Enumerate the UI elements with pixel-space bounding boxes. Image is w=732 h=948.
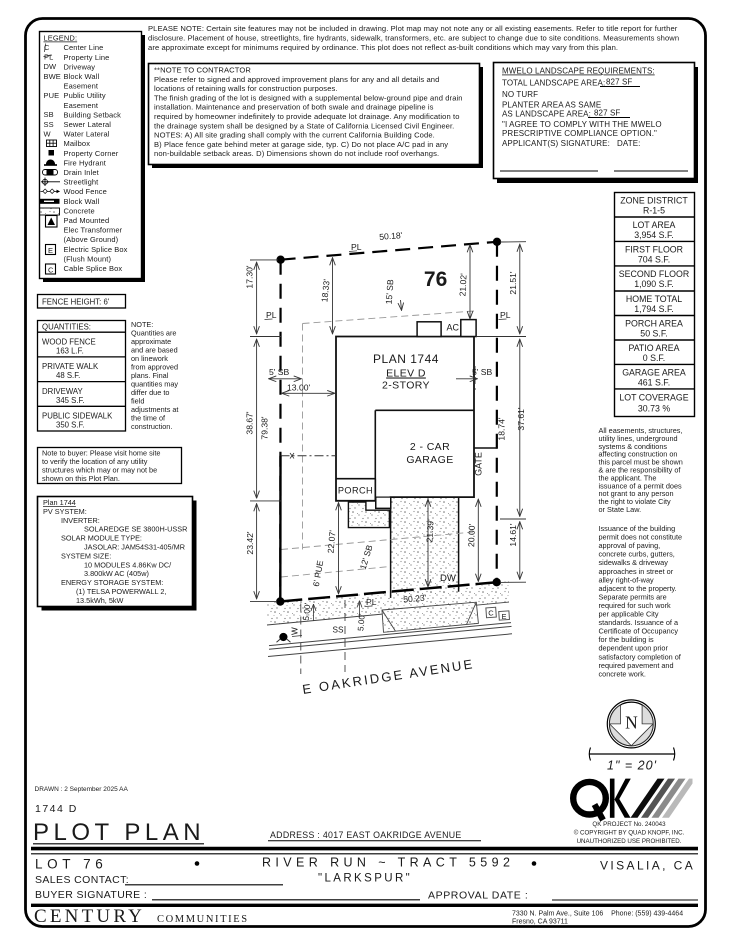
svg-text:SOLAR MODULE TYPE:: SOLAR MODULE TYPE: xyxy=(61,534,142,543)
svg-text:Please refer to signed and app: Please refer to signed and approved impr… xyxy=(154,75,439,84)
svg-text:Fresno, CA 93711: Fresno, CA 93711 xyxy=(512,918,568,925)
svg-text:Sewer Lateral: Sewer Lateral xyxy=(64,120,112,129)
svg-text:Property Corner: Property Corner xyxy=(64,149,119,158)
svg-text:E OAKRIDGE AVENUE: E OAKRIDGE AVENUE xyxy=(301,656,475,697)
svg-text:50 S.F.: 50 S.F. xyxy=(640,329,667,339)
svg-text:FIRST FLOOR: FIRST FLOOR xyxy=(625,244,683,254)
svg-text:Block Wall: Block Wall xyxy=(64,72,100,81)
svg-text:FENCE HEIGHT: 6': FENCE HEIGHT: 6' xyxy=(42,298,110,307)
svg-text:SS: SS xyxy=(44,120,54,129)
svg-text:5' SB: 5' SB xyxy=(472,367,493,377)
svg-text:PV SYSTEM:: PV SYSTEM: xyxy=(43,507,87,516)
svg-text:30.73 %: 30.73 % xyxy=(638,404,670,414)
svg-text:C: C xyxy=(488,609,494,618)
svg-text:2 - CAR: 2 - CAR xyxy=(410,441,450,453)
svg-text:76: 76 xyxy=(424,268,447,291)
svg-text:1" = 20': 1" = 20' xyxy=(607,759,657,773)
svg-text:construction.: construction. xyxy=(131,422,172,431)
svg-text:Concrete: Concrete xyxy=(64,206,95,215)
svg-text:QUANTITIES:: QUANTITIES: xyxy=(42,323,91,332)
svg-text:PLANTER AREA AS SAME: PLANTER AREA AS SAME xyxy=(502,101,601,110)
svg-text:DRIVEWAY: DRIVEWAY xyxy=(42,387,84,396)
svg-text:CENTURY: CENTURY xyxy=(34,906,145,927)
svg-text:R-1-5: R-1-5 xyxy=(643,206,665,216)
svg-text:non-buildable setback areas.: non-buildable setback areas. D) Dimensio… xyxy=(154,149,439,158)
svg-text:UNAUTHORIZED USE PROHIBITED.: UNAUTHORIZED USE PROHIBITED. xyxy=(577,838,682,845)
svg-text:MWELO LANDSCAPE REQUIREMENTS:: MWELO LANDSCAPE REQUIREMENTS: xyxy=(502,67,655,76)
svg-text:APPROVAL DATE :: APPROVAL DATE : xyxy=(428,890,528,902)
svg-text:13.00': 13.00' xyxy=(287,383,311,393)
svg-text:AC: AC xyxy=(446,323,459,333)
svg-text:3,954 S.F.: 3,954 S.F. xyxy=(634,230,674,240)
svg-text:23.42': 23.42' xyxy=(245,531,255,555)
svg-text:PLEASE NOTE: Certain site fea: PLEASE NOTE: Certain site features may n… xyxy=(148,24,678,33)
svg-text:0 S.F.: 0 S.F. xyxy=(643,353,666,363)
svg-text:Driveway: Driveway xyxy=(64,62,96,71)
svg-text:LOT COVERAGE: LOT COVERAGE xyxy=(619,393,688,403)
svg-text:PRESCRIPTIVE COMPLIANCE OPTION: PRESCRIPTIVE COMPLIANCE OPTION." xyxy=(502,129,657,138)
svg-text:disclosure. Placement of hous: disclosure. Placement of house, streetli… xyxy=(148,34,679,43)
svg-text:1,794 S.F.: 1,794 S.F. xyxy=(634,304,674,314)
svg-text:163 L.F.: 163 L.F. xyxy=(56,347,84,356)
svg-text:Plan 1744: Plan 1744 xyxy=(43,498,76,507)
svg-text:50.18': 50.18' xyxy=(379,230,403,242)
svg-text:shown on this Plot Plan.: shown on this Plot Plan. xyxy=(42,474,120,483)
svg-text:PUBLIC SIDEWALK: PUBLIC SIDEWALK xyxy=(42,412,113,421)
svg-text:SB: SB xyxy=(44,110,54,119)
svg-text:1744 D: 1744 D xyxy=(35,803,78,815)
svg-text:COMMUNITIES: COMMUNITIES xyxy=(157,914,249,925)
svg-text:Elec Transformer: Elec Transformer xyxy=(64,226,123,235)
svg-text:345 S.F.: 345 S.F. xyxy=(56,396,85,405)
svg-text:PLOT PLAN: PLOT PLAN xyxy=(33,819,205,846)
svg-text:48 S.F.: 48 S.F. xyxy=(56,371,80,380)
svg-text:concrete work.: concrete work. xyxy=(599,669,646,678)
svg-text:1,090 S.F.: 1,090 S.F. xyxy=(634,279,674,289)
svg-text:PL: PL xyxy=(500,310,511,320)
svg-text:W: W xyxy=(44,129,52,138)
svg-text:DATE:: DATE: xyxy=(617,139,640,148)
svg-text:Water Lateral: Water Lateral xyxy=(64,130,110,139)
svg-text:SYSTEM SIZE:: SYSTEM SIZE: xyxy=(61,551,111,560)
svg-text:PORCH: PORCH xyxy=(338,486,373,496)
svg-text:Cable Splice Box: Cable Splice Box xyxy=(64,264,123,273)
svg-text:50.23': 50.23' xyxy=(403,592,427,604)
svg-text:© COPYRIGHT BY QUAD KNOPF, I: © COPYRIGHT BY QUAD KNOPF, INC. xyxy=(574,830,685,837)
svg-text:SS: SS xyxy=(333,626,344,635)
svg-text:5' SB: 5' SB xyxy=(269,367,290,377)
svg-text:JASOLAR: JAM54S31-405/MR: JASOLAR: JAM54S31-405/MR xyxy=(84,543,185,552)
svg-text:B) Place fence gate behind met: B) Place fence gate behind meter at gara… xyxy=(154,140,448,149)
svg-text:22.07': 22.07' xyxy=(326,529,338,553)
svg-text:5.00': 5.00' xyxy=(302,602,313,621)
svg-text:PL: PL xyxy=(366,597,377,607)
svg-text:TOTAL LANDSCAPE AREA:: TOTAL LANDSCAPE AREA: xyxy=(502,79,605,88)
svg-text:DRAWN : 2 September 2025 A: DRAWN : 2 September 2025 AA xyxy=(35,786,129,793)
svg-text:Electric Splice Box: Electric Splice Box xyxy=(64,245,128,254)
svg-text:the drainage system shall be d: the drainage system shall be designed by… xyxy=(154,121,454,130)
svg-text:DW: DW xyxy=(440,573,456,584)
svg-text:N: N xyxy=(625,712,638,732)
svg-text:Pad Mounted: Pad Mounted xyxy=(64,216,110,225)
svg-text:704 S.F.: 704 S.F. xyxy=(638,254,670,264)
svg-text:7330 N. Palm Ave., Suite 106: 7330 N. Palm Ave., Suite 106 Phone: (559… xyxy=(512,911,683,918)
svg-text:2-STORY: 2-STORY xyxy=(382,380,430,392)
svg-text:ADDRESS : 4017 EAST OAKRIDGE: ADDRESS : 4017 EAST OAKRIDGE AVENUE xyxy=(270,830,462,840)
svg-text:WOOD FENCE: WOOD FENCE xyxy=(42,338,96,347)
svg-text:3.800kW AC (405w): 3.800kW AC (405w) xyxy=(84,569,149,578)
svg-text:GARAGE AREA: GARAGE AREA xyxy=(622,368,686,378)
svg-text:DW: DW xyxy=(44,62,58,71)
svg-text:SECOND FLOOR: SECOND FLOOR xyxy=(619,269,689,279)
svg-text:BUYER SIGNATURE :: BUYER SIGNATURE : xyxy=(35,889,147,901)
svg-text:SOLAREDGE SE 3800H-USSR: SOLAREDGE SE 3800H-USSR xyxy=(84,525,187,534)
svg-text:W: W xyxy=(291,627,300,635)
svg-text:Drain Inlet: Drain Inlet xyxy=(64,168,100,177)
svg-text:GATE: GATE xyxy=(474,452,484,476)
svg-text:Fire Hydrant: Fire Hydrant xyxy=(64,158,107,167)
svg-text:or State Law.: or State Law. xyxy=(599,505,642,514)
svg-text:ZONE DISTRICT: ZONE DISTRICT xyxy=(620,196,688,206)
svg-text:Public Utility: Public Utility xyxy=(64,91,106,100)
svg-text:(1) TELSA POWERWALL 2,: (1) TELSA POWERWALL 2, xyxy=(76,587,166,596)
svg-text:Easement: Easement xyxy=(64,82,99,91)
svg-text:10 MODULES 4.86Kw DC/: 10 MODULES 4.86Kw DC/ xyxy=(84,560,172,569)
svg-text:Easement: Easement xyxy=(64,101,99,110)
svg-text:12' SB: 12' SB xyxy=(358,543,375,570)
svg-text:LOT AREA: LOT AREA xyxy=(633,220,676,230)
svg-text:37.61': 37.61' xyxy=(516,407,526,431)
svg-text:QK PROJECT No. 240043: QK PROJECT No. 240043 xyxy=(592,821,666,828)
svg-text:13.5kWh, 5kW: 13.5kWh, 5kW xyxy=(76,596,124,605)
svg-text:PUE: PUE xyxy=(44,91,60,100)
svg-text:"I AGREE TO COMPLY WITH THE MW: "I AGREE TO COMPLY WITH THE MWELO xyxy=(502,120,662,129)
svg-text:E: E xyxy=(502,612,507,621)
svg-text:are approximate except for min: are approximate except for minimums requ… xyxy=(148,43,618,52)
svg-text:18.74': 18.74' xyxy=(497,417,507,441)
svg-text:ENERGY STORAGE SYSTEM:: ENERGY STORAGE SYSTEM: xyxy=(61,578,163,587)
svg-text:461 S.F.: 461 S.F. xyxy=(638,378,670,388)
svg-text:20.00': 20.00' xyxy=(466,523,477,547)
svg-text:79.38': 79.38' xyxy=(260,416,270,440)
svg-text:14.61': 14.61' xyxy=(508,523,518,547)
svg-text:(Above Ground): (Above Ground) xyxy=(64,235,119,244)
svg-text:AS LANDSCAPE AREA:: AS LANDSCAPE AREA: xyxy=(502,110,591,119)
svg-text:PORCH AREA: PORCH AREA xyxy=(625,319,683,329)
svg-text:(Flush Mount): (Flush Mount) xyxy=(64,254,112,263)
svg-text:PL: PL xyxy=(44,53,53,62)
svg-text:15' SB: 15' SB xyxy=(384,279,396,305)
svg-text:21.39': 21.39' xyxy=(424,519,435,543)
svg-text:**NOTE TO CONTRACTOR: **NOTE TO CONTRACTOR xyxy=(154,66,251,75)
svg-text:38.67': 38.67' xyxy=(245,411,255,435)
svg-text:827 SF: 827 SF xyxy=(606,78,632,87)
svg-text:Building Setback: Building Setback xyxy=(64,110,122,119)
svg-text:Mailbox: Mailbox xyxy=(64,139,91,148)
svg-text:17.30': 17.30' xyxy=(245,265,255,289)
svg-text:Wood Fence: Wood Fence xyxy=(64,187,107,196)
svg-text:Block Wall: Block Wall xyxy=(64,197,100,206)
svg-text:"LARKSPUR": "LARKSPUR" xyxy=(318,873,412,885)
svg-text:HOME TOTAL: HOME TOTAL xyxy=(626,294,682,304)
svg-text:The finish grading of the lot: The finish grading of the lot is designe… xyxy=(154,93,463,102)
svg-text:GARAGE: GARAGE xyxy=(406,454,453,466)
svg-text:APPLICANT(S) SIGNATURE:: APPLICANT(S) SIGNATURE: xyxy=(502,139,610,148)
svg-text:PRIVATE WALK: PRIVATE WALK xyxy=(42,362,99,371)
svg-text:C: C xyxy=(48,265,54,274)
svg-text:VISALIA, CA: VISALIA, CA xyxy=(600,859,695,873)
svg-text:SALES CONTACT:: SALES CONTACT: xyxy=(35,874,129,886)
svg-text:18.33': 18.33' xyxy=(319,278,331,302)
svg-text:NOTES: A) All site grading s: NOTES: A) All site grading shall comply … xyxy=(154,131,435,140)
svg-text:PL: PL xyxy=(351,242,362,252)
svg-text:PL: PL xyxy=(266,310,277,320)
svg-text:Center Line: Center Line xyxy=(64,43,104,52)
svg-text:5.00': 5.00' xyxy=(356,613,367,632)
svg-text:Streetlight: Streetlight xyxy=(64,178,100,187)
svg-text:PATIO AREA: PATIO AREA xyxy=(628,343,679,353)
svg-text:INVERTER:: INVERTER: xyxy=(61,516,100,525)
svg-text:21.02': 21.02' xyxy=(457,273,468,297)
svg-text:RIVER RUN ~ TRACT 5592: RIVER RUN ~ TRACT 5592 xyxy=(262,856,514,870)
svg-text:installation. Maintenance and: installation. Maintenance and preservati… xyxy=(154,103,434,112)
svg-text:NO TURF: NO TURF xyxy=(502,90,538,99)
svg-text:BWE: BWE xyxy=(44,72,61,81)
svg-text:ELEV D: ELEV D xyxy=(386,368,426,380)
svg-text:E: E xyxy=(48,246,53,255)
svg-text:LOT 76: LOT 76 xyxy=(35,857,107,872)
svg-text:Property Line: Property Line xyxy=(64,53,110,62)
svg-text:21.51': 21.51' xyxy=(508,271,518,295)
svg-text:required by homeowner indefini: required by homeowner indefinitely to pr… xyxy=(154,112,460,121)
svg-text:locations of retaining walls f: locations of retaining walls for constru… xyxy=(154,84,338,93)
svg-text:PLAN 1744: PLAN 1744 xyxy=(373,352,439,366)
svg-text:350 S.F.: 350 S.F. xyxy=(56,421,85,430)
svg-text:827 SF: 827 SF xyxy=(594,109,620,118)
svg-text:LEGEND:: LEGEND: xyxy=(44,34,78,43)
svg-text:6' PUE: 6' PUE xyxy=(311,559,325,587)
